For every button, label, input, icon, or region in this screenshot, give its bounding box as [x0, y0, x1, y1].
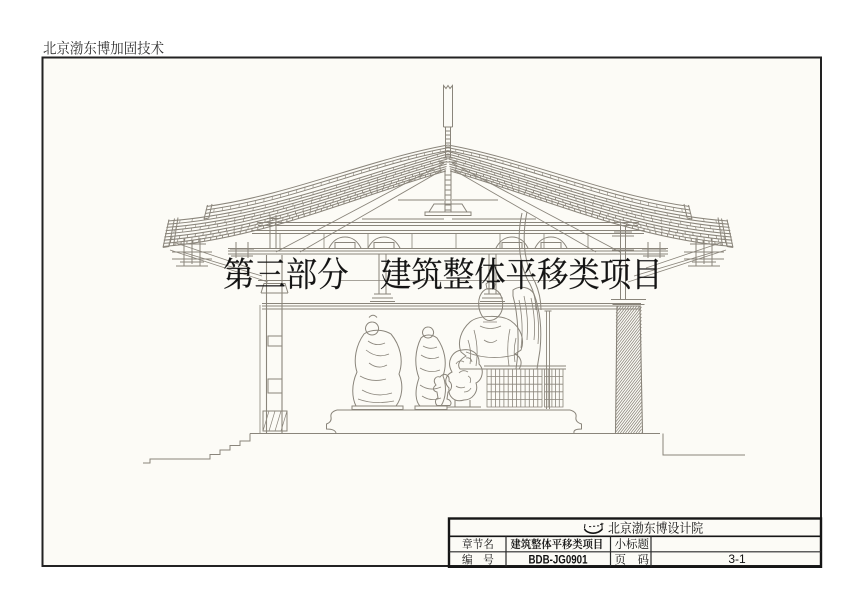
svg-text:3-1: 3-1 [728, 552, 746, 566]
svg-text:BDB-JG0901: BDB-JG0901 [529, 554, 589, 566]
